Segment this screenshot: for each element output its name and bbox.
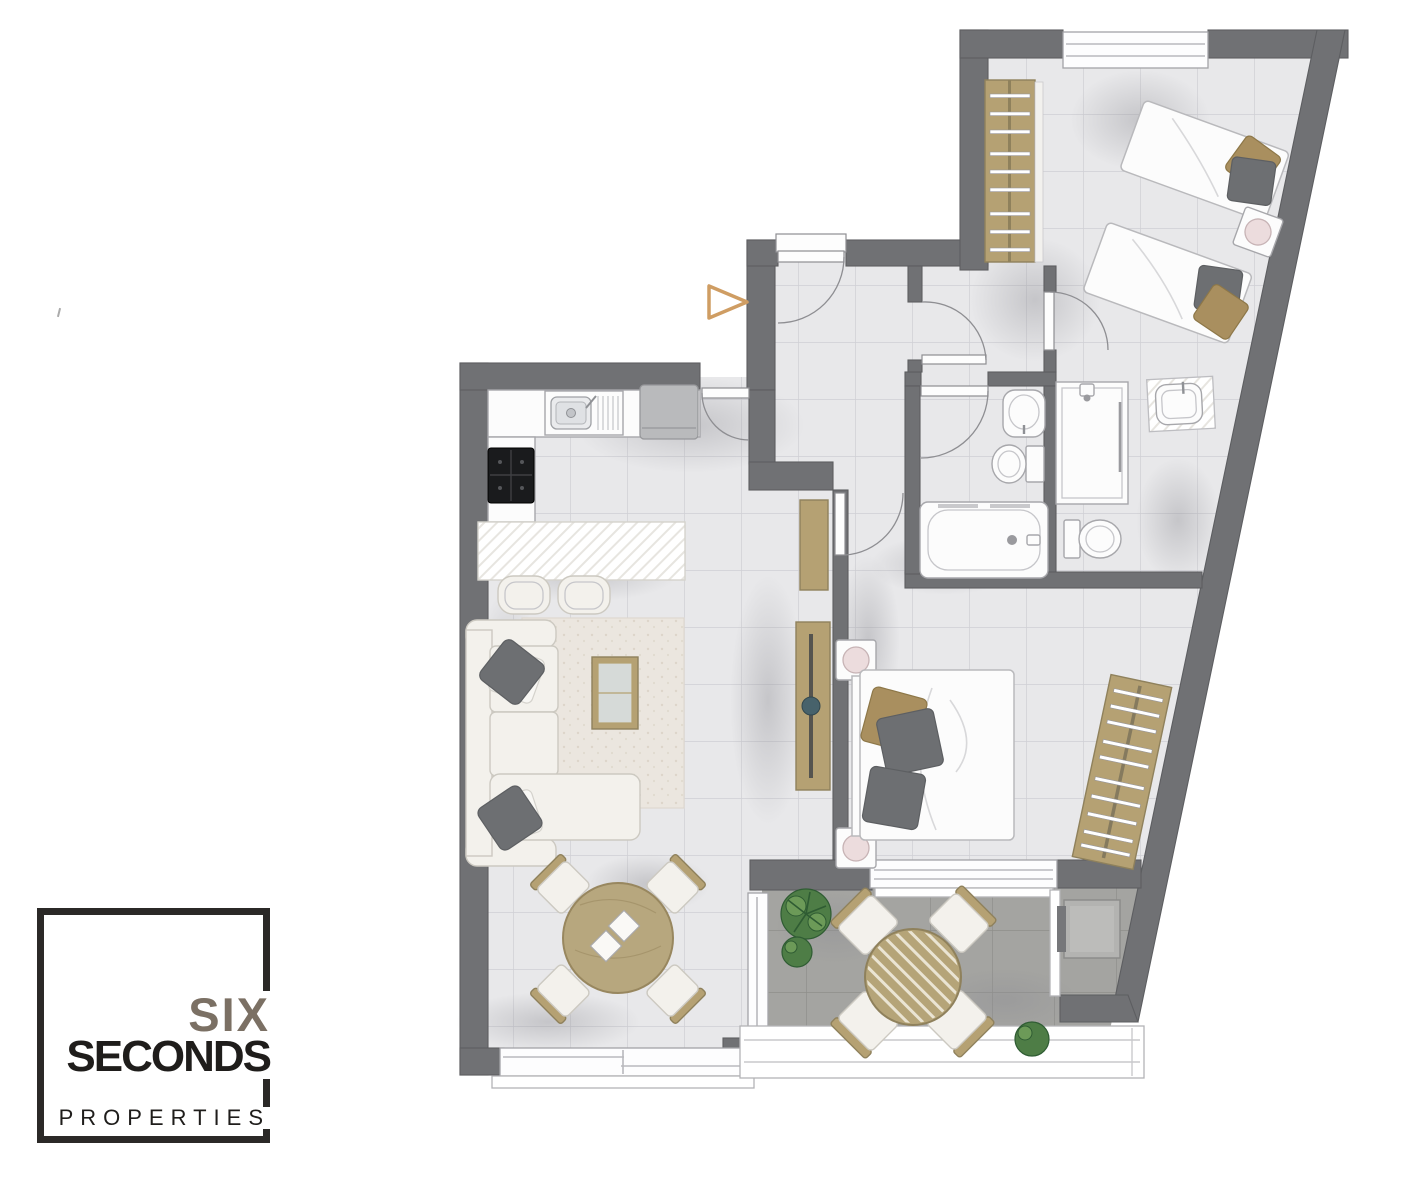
window-twin-bedroom — [1063, 32, 1208, 68]
toilet[interactable] — [1064, 520, 1121, 558]
console-table[interactable] — [796, 622, 830, 790]
bathtub[interactable] — [920, 502, 1048, 578]
logo-word-six: SIX — [178, 991, 270, 1038]
entrance-arrow-icon — [709, 286, 747, 318]
kitchen-island — [478, 522, 685, 580]
plant — [1015, 1022, 1049, 1056]
plant — [782, 937, 812, 967]
console-table[interactable] — [800, 500, 828, 590]
door-living-terrace — [748, 893, 768, 1040]
cooktop[interactable] — [488, 448, 534, 503]
vanity-washbasin[interactable] — [1147, 376, 1216, 431]
ac-unit[interactable] — [1057, 900, 1120, 958]
logo-word-properties: PROPERTIES — [49, 1107, 270, 1129]
logo-word-seconds: SECONDS — [56, 1035, 270, 1079]
double-bed[interactable] — [852, 670, 1014, 840]
wardrobe-twin[interactable] — [985, 80, 1043, 262]
bar-stool[interactable] — [558, 576, 610, 614]
refrigerator[interactable] — [640, 385, 698, 439]
washbasin[interactable] — [1003, 390, 1045, 437]
shower[interactable] — [1056, 382, 1128, 504]
bar-stool[interactable] — [498, 576, 550, 614]
window-living-south — [492, 1048, 754, 1088]
coffee-table[interactable] — [592, 657, 638, 729]
table-lamp — [843, 647, 869, 673]
dining-table[interactable] — [563, 883, 673, 993]
plant — [781, 889, 831, 939]
toilet[interactable] — [992, 445, 1044, 483]
floorplan-page: SIX SECONDS PROPERTIES — [0, 0, 1410, 1182]
kitchen-sink[interactable] — [545, 391, 623, 435]
brand-logo: SIX SECONDS PROPERTIES — [37, 908, 270, 1143]
